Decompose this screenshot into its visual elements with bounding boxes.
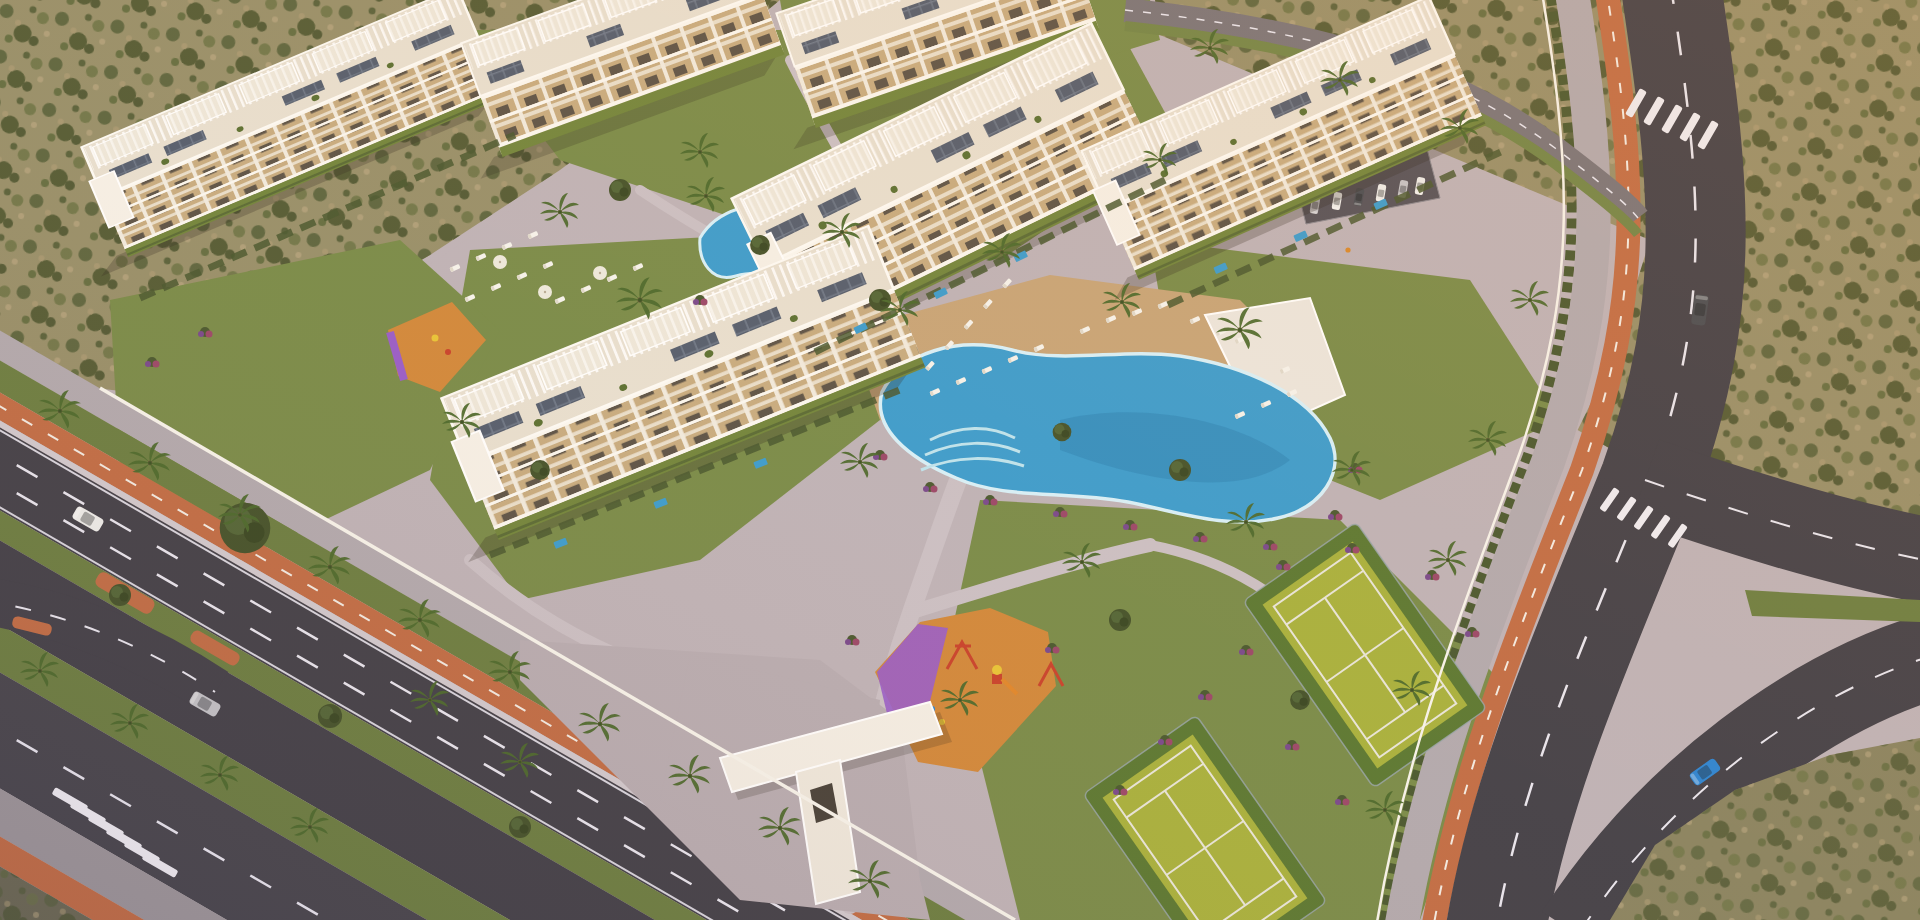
golden-hour-overlay xyxy=(0,0,1920,920)
render-viewport xyxy=(0,0,1920,920)
aerial-complex-render xyxy=(0,0,1920,920)
